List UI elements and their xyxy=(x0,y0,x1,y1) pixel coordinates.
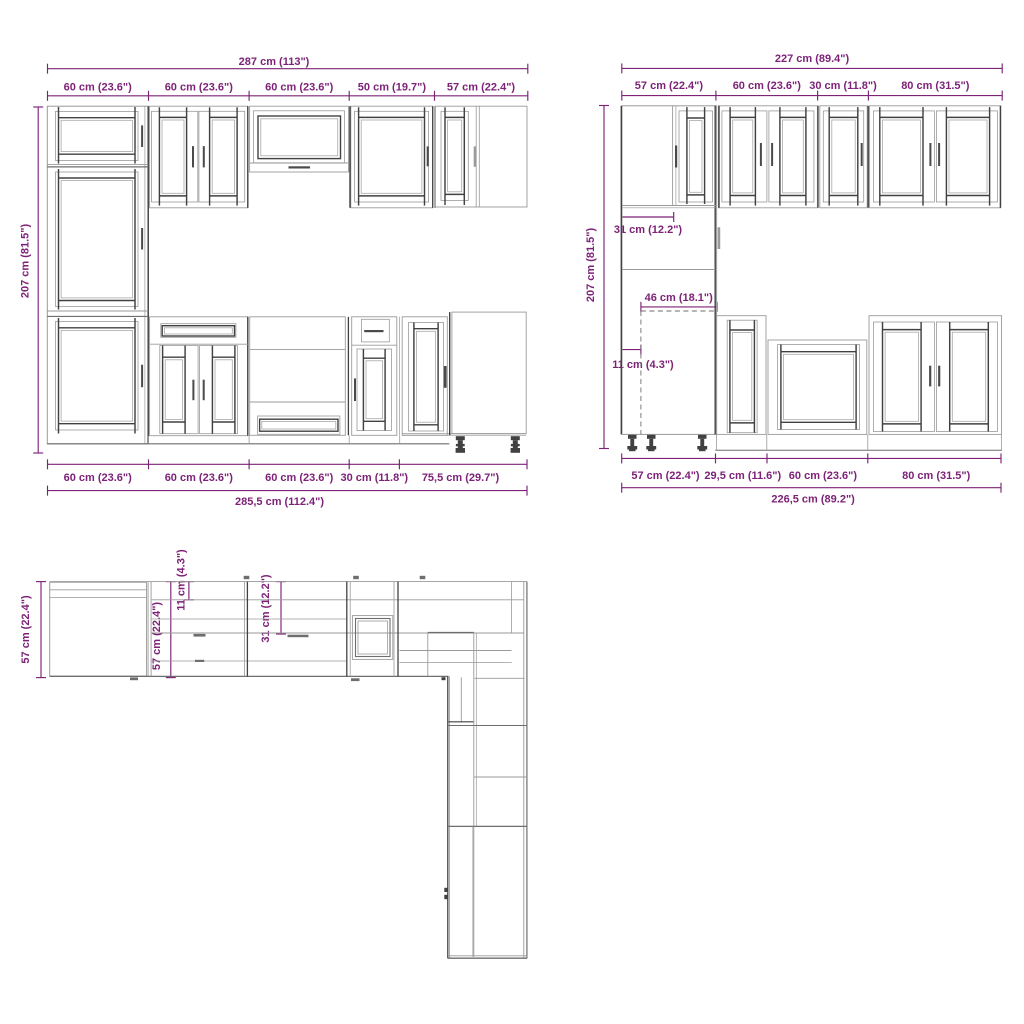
svg-text:60 cm (23.6"): 60 cm (23.6") xyxy=(64,81,133,93)
svg-text:29,5 cm (11.6"): 29,5 cm (11.6") xyxy=(704,470,781,482)
svg-text:60 cm (23.6"): 60 cm (23.6") xyxy=(789,470,858,482)
svg-text:46 cm (18.1"): 46 cm (18.1") xyxy=(645,292,714,304)
svg-text:30 cm (11.8"): 30 cm (11.8") xyxy=(341,472,409,484)
svg-text:80 cm (31.5"): 80 cm (31.5") xyxy=(902,470,971,482)
svg-text:207 cm (81.5"): 207 cm (81.5") xyxy=(585,228,597,303)
svg-text:285,5 cm (112.4"): 285,5 cm (112.4") xyxy=(235,496,324,508)
svg-text:57 cm (22.4"): 57 cm (22.4") xyxy=(635,80,704,92)
svg-text:60 cm (23.6"): 60 cm (23.6") xyxy=(265,81,334,93)
svg-text:57 cm (22.4"): 57 cm (22.4") xyxy=(20,595,32,664)
svg-text:60 cm (23.6"): 60 cm (23.6") xyxy=(265,472,334,484)
svg-text:75,5 cm (29.7"): 75,5 cm (29.7") xyxy=(422,472,500,484)
svg-text:57 cm (22.4"): 57 cm (22.4") xyxy=(151,602,163,671)
svg-text:30 cm (11.8"): 30 cm (11.8") xyxy=(809,80,877,92)
svg-text:57 cm (22.4"): 57 cm (22.4") xyxy=(631,470,700,482)
svg-text:60 cm (23.6"): 60 cm (23.6") xyxy=(165,81,234,93)
svg-text:287 cm (113"): 287 cm (113") xyxy=(239,56,310,68)
svg-text:207 cm (81.5"): 207 cm (81.5") xyxy=(20,224,32,299)
svg-text:60 cm (23.6"): 60 cm (23.6") xyxy=(64,472,133,484)
svg-text:60 cm (23.6"): 60 cm (23.6") xyxy=(733,80,802,92)
svg-text:227 cm (89.4"): 227 cm (89.4") xyxy=(775,53,850,65)
svg-text:11 cm (4.3"): 11 cm (4.3") xyxy=(175,549,187,611)
svg-text:226,5 cm (89.2"): 226,5 cm (89.2") xyxy=(771,494,855,506)
svg-text:50 cm (19.7"): 50 cm (19.7") xyxy=(358,81,427,93)
svg-text:80 cm (31.5"): 80 cm (31.5") xyxy=(901,80,970,92)
svg-text:31 cm (12.2"): 31 cm (12.2") xyxy=(614,224,683,236)
svg-text:31 cm (12.2"): 31 cm (12.2") xyxy=(260,574,272,643)
svg-text:60 cm (23.6"): 60 cm (23.6") xyxy=(165,472,234,484)
svg-text:57 cm (22.4"): 57 cm (22.4") xyxy=(447,81,516,93)
